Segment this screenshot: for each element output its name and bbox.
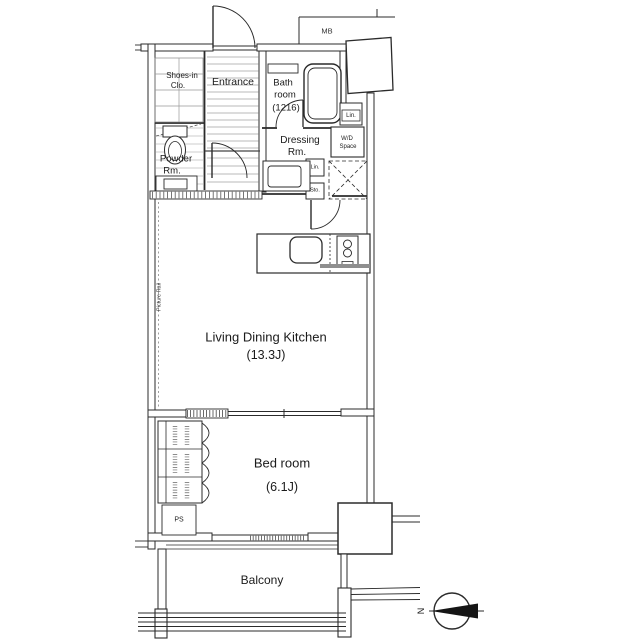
floor-sill [150,191,262,199]
label-bathroom-size: (1216) [272,103,299,113]
label-linen-upper: Lin. [346,113,356,119]
label-bedroom-size: (6.1J) [266,481,298,494]
dressing-door [311,200,340,229]
balcony-railing [138,549,420,638]
label-bathroom-line1: Bath [273,78,293,88]
label-linen-lower: Lin. [311,165,320,171]
floor-plan-drawing [0,0,640,640]
label-pipe-space: PS [174,517,183,524]
label-ldk: Living Dining Kitchen [205,331,326,344]
label-storage: Sto. [310,188,320,194]
label-wd-space-line1: W/D [341,136,353,142]
wd-space-box [331,127,364,157]
label-bathroom-line2: room [274,90,296,100]
label-powder-line2: Rm. [163,166,180,176]
pillar-bottom [338,503,420,554]
label-dressing-line1: Dressing [280,136,319,146]
counter-edge-bar [320,264,370,268]
label-powder-line1: Powder [160,154,192,164]
bedroom-divider [186,409,341,418]
label-compass-north: N [416,608,425,615]
bedroom-closet [158,421,209,503]
label-bedroom: Bed room [254,457,310,470]
label-entrance: Entrance [212,77,254,88]
label-shoes-closet-line1: Shoes-in [166,72,198,80]
bathtub [304,64,341,123]
refrigerator-space [329,161,367,199]
dressing-washbasin [263,161,310,191]
label-meter-box: MB [321,27,332,35]
label-dressing-line2: Rm. [288,148,306,158]
compass [429,593,484,629]
label-balcony: Balcony [241,574,284,586]
closet-folding-doors [202,423,209,503]
kitchen-counter [257,234,370,273]
floor-plan: MB Shoes-in Clo. Entrance Bath room (121… [0,0,640,640]
pillar-shaft-top [346,38,393,94]
label-picture-rail: Picture Rail [157,283,163,311]
label-wd-space-line2: Space [339,144,356,150]
shoes-closet-shelves [155,58,203,122]
powder-sink [156,176,197,191]
entrance-door [213,6,257,50]
label-shoes-closet-line2: Clo. [171,82,185,90]
label-ldk-size: (13.3J) [247,349,286,362]
